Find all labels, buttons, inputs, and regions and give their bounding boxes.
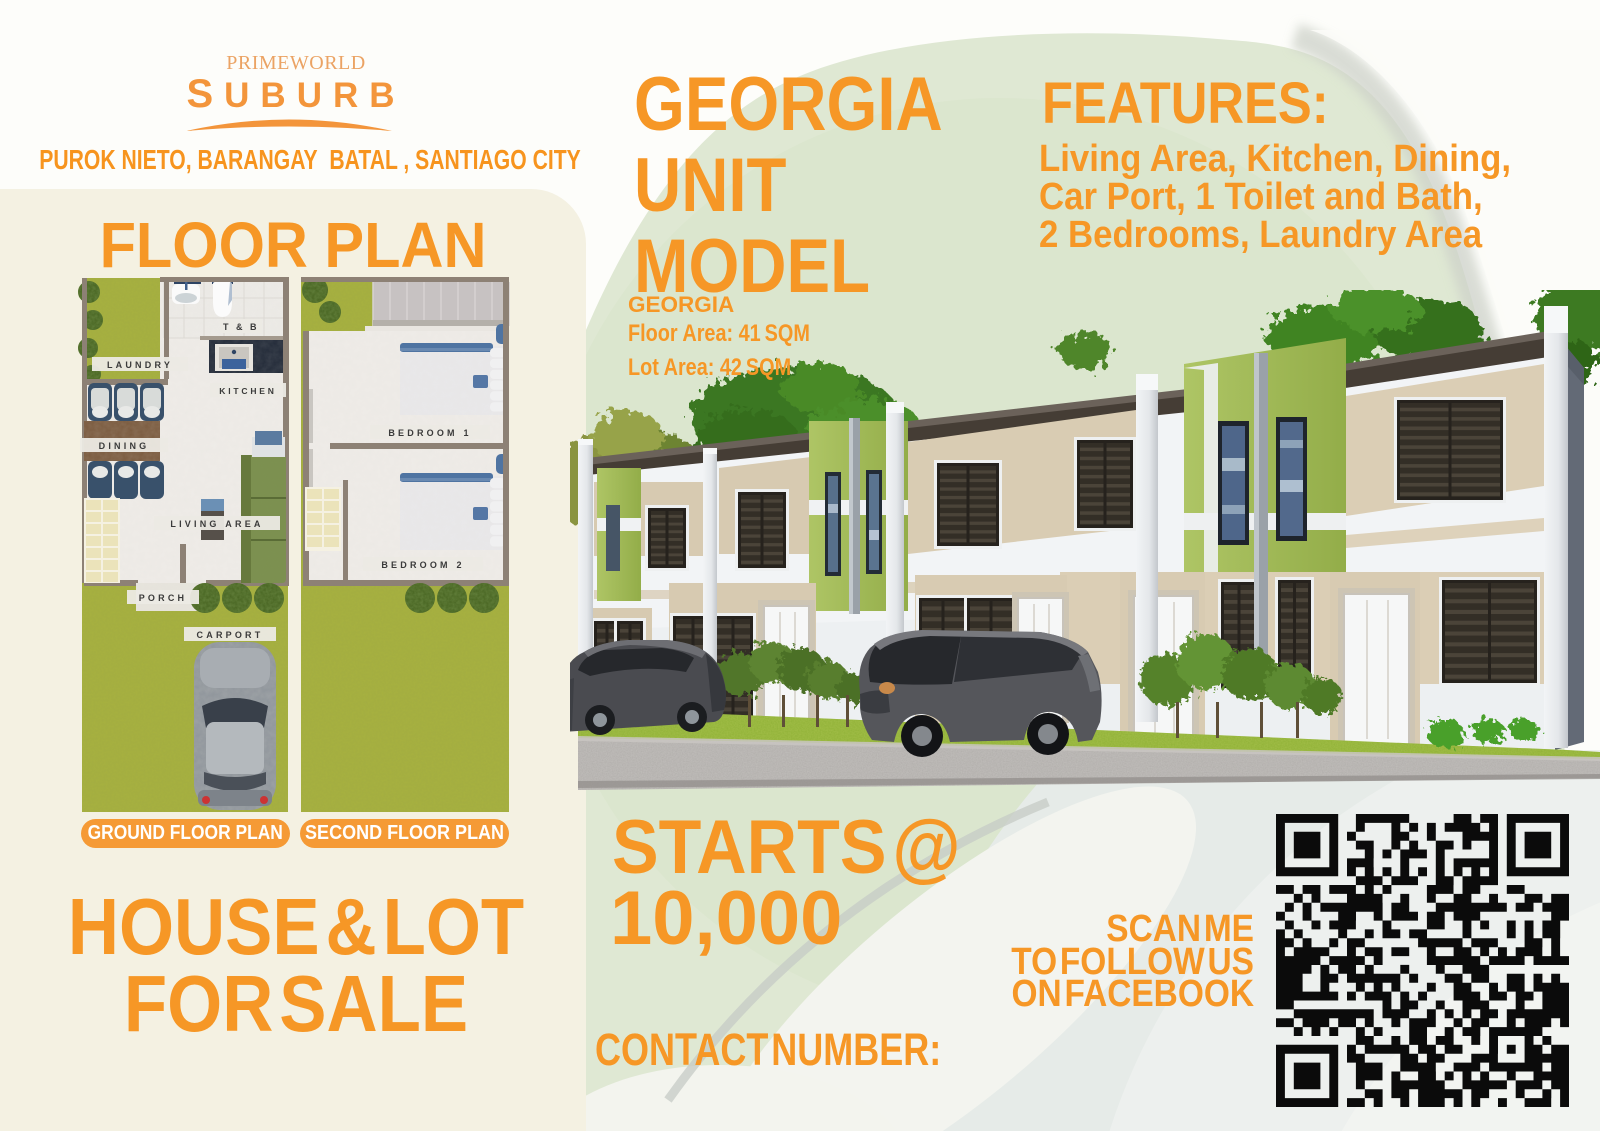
svg-text:LIVING AREA: LIVING AREA xyxy=(170,519,263,529)
svg-text:CARPORT: CARPORT xyxy=(197,630,264,640)
svg-text:KITCHEN: KITCHEN xyxy=(219,386,276,396)
svg-text:DINING: DINING xyxy=(99,441,150,451)
svg-text:BEDROOM 1: BEDROOM 1 xyxy=(388,428,471,438)
svg-text:T & B: T & B xyxy=(223,322,259,332)
svg-text:LAUNDRY: LAUNDRY xyxy=(107,360,173,370)
svg-text:PORCH: PORCH xyxy=(139,593,188,603)
svg-text:BEDROOM 2: BEDROOM 2 xyxy=(381,560,464,570)
